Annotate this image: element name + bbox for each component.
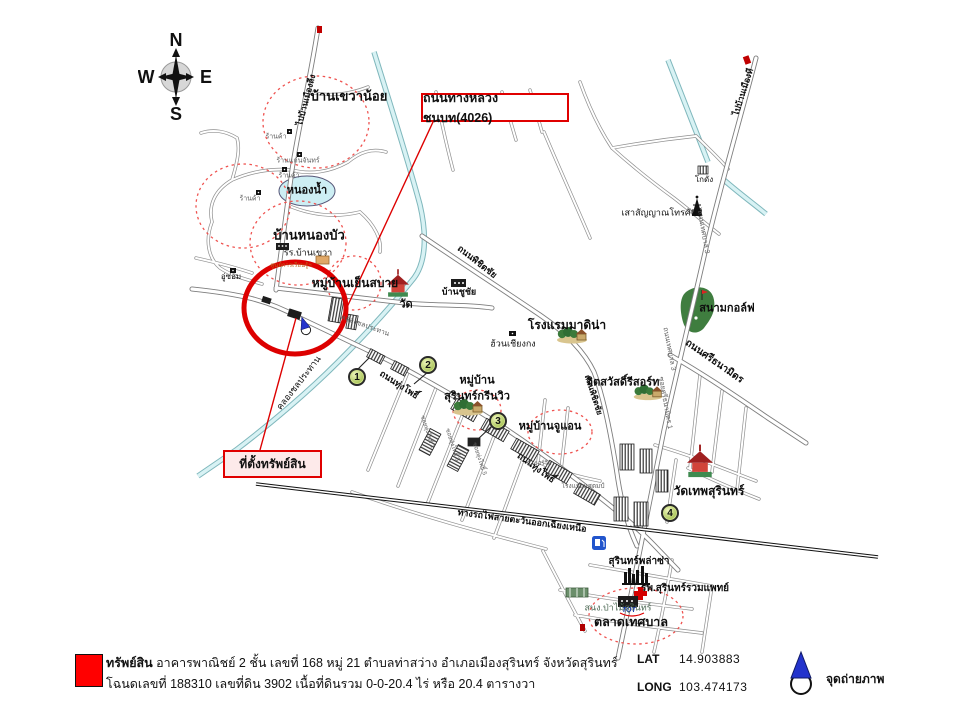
map-label: วัด [399,300,412,311]
map-label: ร้านค้า [278,173,299,180]
callout-property-location-label: ที่ตั้งทรัพย์สิน [239,455,305,474]
map-label: สุรินทร์พล่าซ่า [608,557,669,567]
compass-south-label: S [170,104,182,122]
road-end-marker [743,55,751,65]
gas-station-icon [592,536,606,550]
photo-point-legend: จุดถ่ายภาพ [778,648,948,700]
map-label: เสาสัญญาณโทรศัพท์ [621,209,702,218]
map-label: วัดเทพสุรินทร์ [674,485,745,497]
property-legend-swatch [75,654,103,687]
map-label: สนามกอล์ฟ [699,304,754,315]
map-label: บ้านเขวาน้อย [311,90,388,103]
compass-north-label: N [170,30,183,50]
map-label: โรงแรมมาดิน่า [528,319,606,331]
property-description-line1: ทรัพย์สิน อาคารพาณิชย์ 2 ชั้น เลขที่ 168… [106,653,646,674]
map-label: ร้านแก่นจันทร์ [276,158,319,165]
property-description-line2: โฉนดเลขที่ 188310 เลขที่ดิน 3902 เนื้อที… [106,674,646,695]
map-canvas: TOT [0,0,960,720]
road-end-marker [317,26,322,33]
callout-road-4026-label: ถนนทางหลวงชนบท(4026) [423,88,567,128]
map-label: ฮ้วนเชียงกง [490,340,535,349]
map-label: สุรินทร์กรีนวิว [444,392,510,403]
coordinates-block: LAT14.903883 LONG103.474173 [637,652,747,708]
map-number-marker: 3 [489,412,507,430]
road-end-marker [580,624,585,631]
map-label: หนองน้ำ [287,186,327,197]
photo-point-label: จุดถ่ายภาพ [826,670,884,689]
map-label: หมู่บ้าน [459,376,494,387]
map-label: ร้านค้า [265,134,286,141]
callout-property-location: ที่ตั้งทรัพย์สิน [223,450,322,478]
map-label: อู่ซ่อม [221,273,241,281]
map-label: สนง.ป่าไม้สุรินทร์ [584,604,651,613]
map-label: โกดัง [695,176,713,184]
map-label: ป.เธอร์วิล [526,461,551,467]
map-number-marker: 2 [419,356,437,374]
map-label: บ้านชูชัย [442,288,476,297]
lat-label: LAT [637,652,679,666]
map-label: จิตสวัสดิ์รีสอร์ท [587,378,660,389]
compass-rose: N S W E [138,22,214,122]
callout-road-4026: ถนนทางหลวงชนบท(4026) [421,93,569,122]
compass-west-label: W [138,67,155,87]
long-value: 103.474173 [679,680,747,694]
lat-value: 14.903883 [679,652,740,666]
map-label: บ้านหนองบัว [273,229,345,242]
map-label: ศูนย์การเรียนรู้ฯ [270,263,311,269]
compass-east-label: E [200,67,212,87]
property-description: ทรัพย์สิน อาคารพาณิชย์ 2 ชั้น เลขที่ 168… [106,653,646,695]
map-number-marker: 4 [661,504,679,522]
map-number-marker: 1 [348,368,366,386]
property-details: อาคารพาณิชย์ 2 ชั้น เลขที่ 168 หมู่ 21 ต… [153,656,618,670]
map-label: ร้านค้า [239,196,260,203]
property-title: ทรัพย์สิน [106,656,153,670]
photo-point-icon [778,648,824,700]
map-label: รร.บ้านเขวา [284,249,332,258]
map-label: โรงแรมแสตมป์ [562,484,605,491]
long-label: LONG [637,680,679,694]
map-label: ตลาดเทศบาล [594,616,668,629]
map-label: รพ.สุรินทร์รวมแพทย์ [641,584,729,594]
map-label: หมู่บ้านเย็นสบาย [312,277,398,289]
map-label: หมู่บ้านจูแอน [519,422,582,433]
